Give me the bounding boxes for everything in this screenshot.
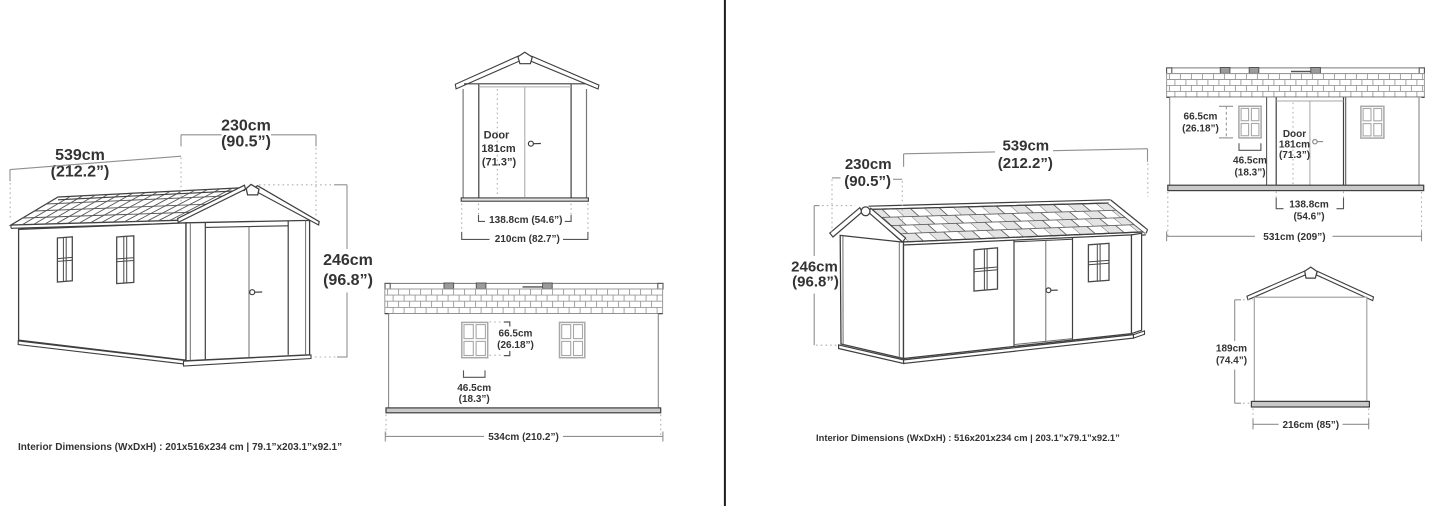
svg-text:(18.3”): (18.3”): [1234, 168, 1265, 179]
svg-text:(71.3”): (71.3”): [1279, 150, 1310, 161]
svg-text:(26.18”): (26.18”): [1182, 124, 1219, 135]
svg-text:(90.5”): (90.5”): [221, 133, 271, 150]
svg-text:181cm: 181cm: [1279, 140, 1310, 151]
svg-text:210cm (82.7”): 210cm (82.7”): [495, 234, 560, 245]
svg-text:(54.6”): (54.6”): [1293, 212, 1324, 223]
svg-text:181cm: 181cm: [481, 143, 515, 155]
svg-text:138.8cm (54.6”): 138.8cm (54.6”): [489, 215, 562, 226]
svg-text:138.8cm: 138.8cm: [1289, 199, 1329, 210]
svg-text:216cm (85”): 216cm (85”): [1282, 420, 1339, 431]
svg-text:Door: Door: [484, 130, 510, 142]
svg-text:230cm: 230cm: [845, 156, 892, 173]
svg-text:(96.8”): (96.8”): [792, 274, 839, 291]
svg-text:531cm (209”): 531cm (209”): [1263, 232, 1325, 243]
svg-text:46.5cm: 46.5cm: [1233, 156, 1267, 167]
svg-text:(74.4”): (74.4”): [1216, 356, 1247, 367]
svg-text:(26.18”): (26.18”): [497, 340, 534, 351]
svg-text:539cm: 539cm: [1002, 138, 1049, 155]
svg-text:Door: Door: [1283, 129, 1306, 140]
svg-text:230cm: 230cm: [221, 118, 271, 135]
svg-text:Interior Dimensions (WxDxH) :: Interior Dimensions (WxDxH) : 516x201x23…: [816, 432, 1120, 443]
svg-text:(90.5”): (90.5”): [844, 173, 891, 190]
svg-text:66.5cm: 66.5cm: [499, 329, 533, 340]
svg-text:66.5cm: 66.5cm: [1184, 112, 1218, 123]
svg-text:189cm: 189cm: [1216, 344, 1247, 355]
svg-text:(71.3”): (71.3”): [482, 157, 517, 169]
svg-text:246cm: 246cm: [323, 252, 373, 269]
svg-text:46.5cm: 46.5cm: [457, 383, 491, 394]
svg-text:(96.8”): (96.8”): [323, 272, 373, 289]
svg-text:534cm (210.2”): 534cm (210.2”): [488, 432, 559, 443]
svg-text:539cm: 539cm: [55, 147, 105, 164]
svg-text:(212.2”): (212.2”): [998, 155, 1053, 172]
svg-text:Interior Dimensions (WxDxH) :: Interior Dimensions (WxDxH) : 201x516x23…: [18, 442, 342, 453]
svg-text:(18.3”): (18.3”): [459, 394, 490, 405]
